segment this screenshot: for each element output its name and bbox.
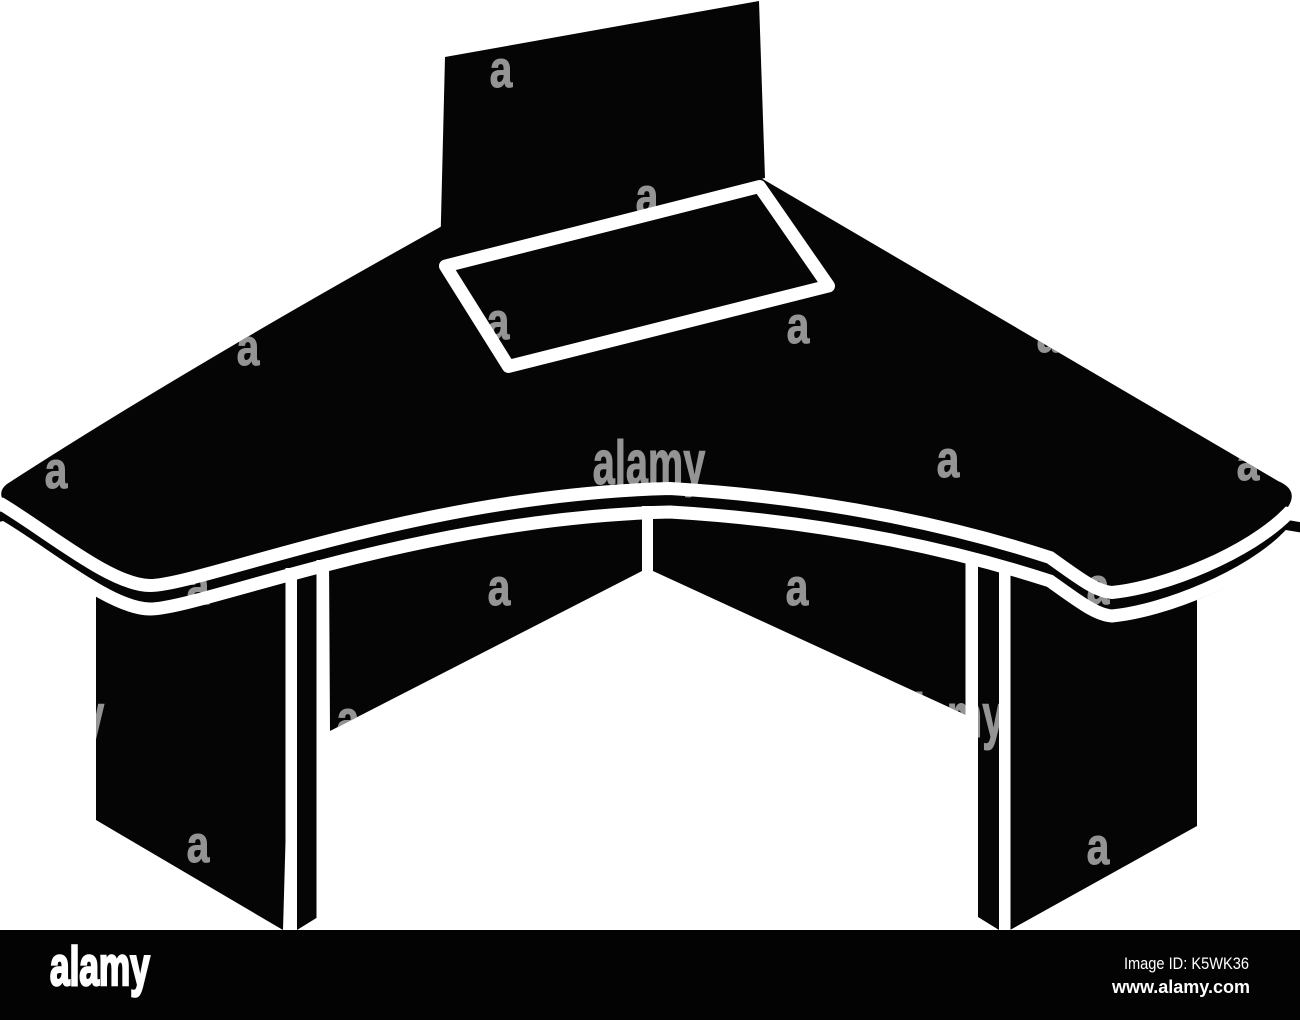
svg-text:a: a: [1087, 817, 1110, 875]
svg-text:Image ID: K5WK36: Image ID: K5WK36: [1124, 955, 1249, 973]
svg-text:alamy: alamy: [50, 935, 150, 997]
svg-text:a: a: [786, 558, 809, 616]
svg-text:a: a: [787, 296, 810, 354]
svg-text:www.alamy.com: www.alamy.com: [1111, 977, 1250, 997]
svg-text:a: a: [937, 430, 960, 488]
svg-text:a: a: [488, 558, 511, 616]
svg-text:a: a: [490, 40, 513, 98]
svg-text:a: a: [187, 815, 210, 873]
